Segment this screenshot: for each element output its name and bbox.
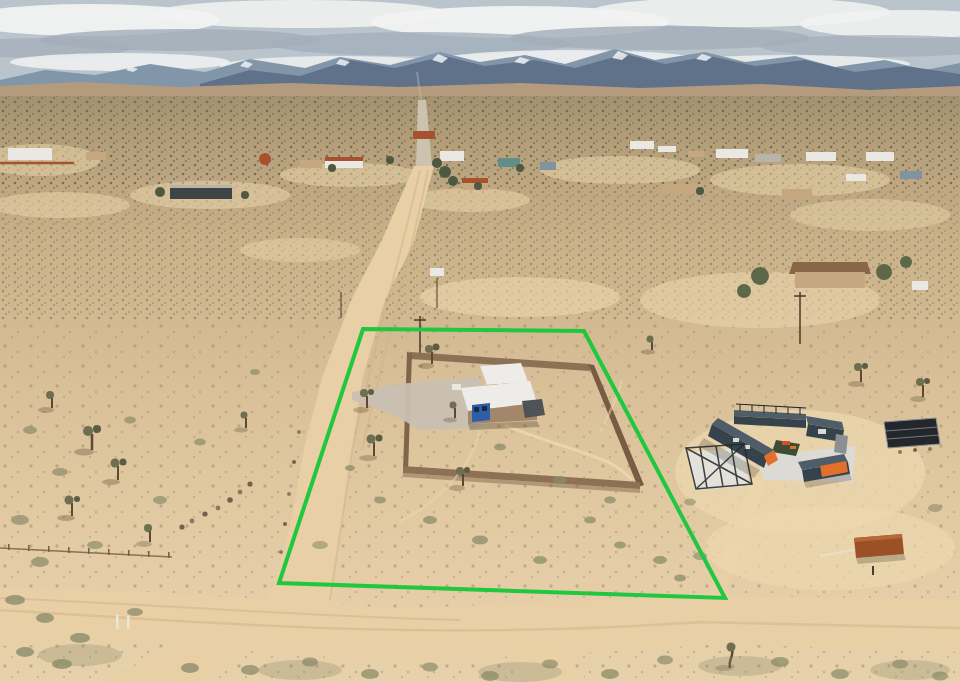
house-door-window [472,403,490,422]
window-pane [482,406,487,411]
container-window [733,438,739,442]
distant-house [86,152,106,160]
distant-house [806,152,836,161]
distant-house [8,148,52,160]
distant-house-roof [462,178,488,183]
distant-house [440,151,464,161]
distant-house [782,189,812,198]
distant-house [413,131,435,139]
distant-house [900,171,922,179]
distant-house [658,146,676,152]
distant-house [716,149,748,158]
distant-house [498,158,520,167]
window-pane [474,407,479,412]
patio-furniture [782,441,790,445]
distant-house [866,152,894,161]
distant-house [688,151,704,157]
sign-post [872,566,874,575]
container-window [818,429,826,434]
tree [900,256,912,268]
red-roofed-hut [259,153,271,165]
distant-house [662,184,702,194]
sand-open-area [705,506,955,590]
patio-furniture [790,446,796,449]
distant-house [755,154,781,162]
aerial-photo [0,0,960,682]
rv-trailer [912,281,928,290]
container-stairs [834,434,848,454]
shed-roof [480,363,528,385]
tree [751,267,769,285]
distant-shack [430,268,444,276]
tree [737,284,751,298]
small-trailer [452,384,461,390]
distant-house [630,141,654,149]
distant-house [540,162,556,170]
solar-panel-surface [884,418,940,448]
shade-canopy [522,399,545,418]
dark-modern-house-roof [170,185,232,188]
tree [876,264,892,280]
distant-house-roof [325,157,363,161]
ranch-wall [795,272,865,288]
distant-house [300,160,322,168]
distant-house [846,174,866,181]
